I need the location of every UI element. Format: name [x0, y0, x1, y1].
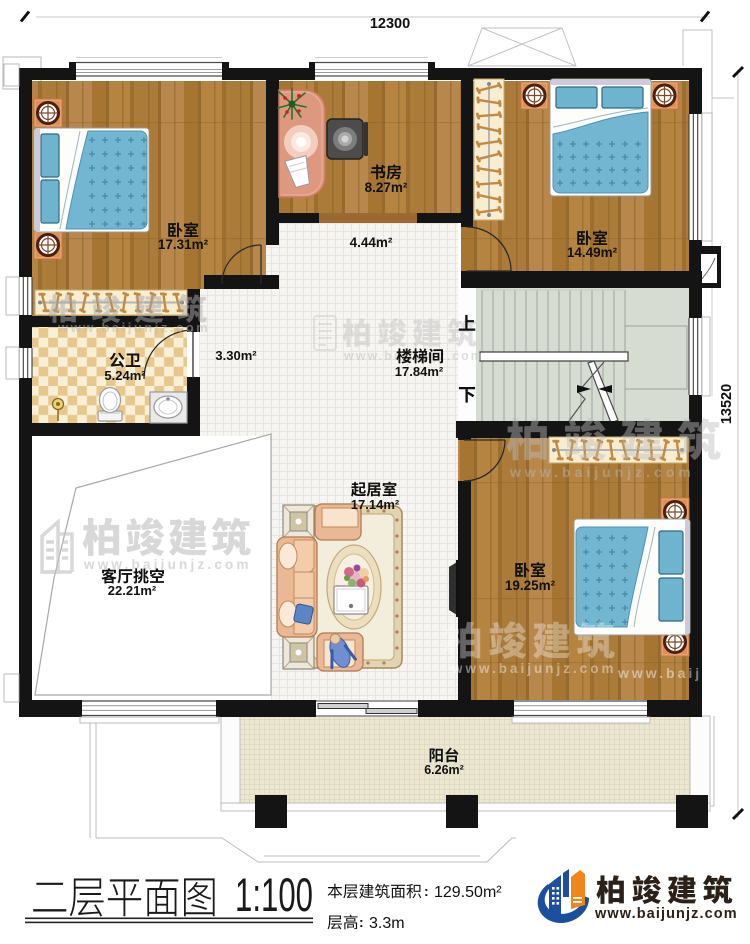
- svg-text:www.baijunjz.com: www.baijunjz.com: [343, 349, 484, 363]
- svg-text::: :: [424, 883, 429, 899]
- svg-text:www.baijunjz.com: www.baijunjz.com: [509, 464, 695, 480]
- svg-text:22.21m²: 22.21m²: [108, 583, 157, 598]
- svg-text:17.31m²: 17.31m²: [158, 237, 209, 252]
- svg-text:4.44m²: 4.44m²: [350, 235, 393, 250]
- svg-text::: :: [359, 914, 364, 930]
- svg-text:8.27m²: 8.27m²: [365, 180, 408, 195]
- svg-text:1:100: 1:100: [235, 868, 313, 921]
- svg-text:14.49m²: 14.49m²: [567, 245, 618, 260]
- svg-text:www.baijunjz.com: www.baijunjz.com: [594, 906, 738, 922]
- svg-text:3.30m²: 3.30m²: [215, 348, 257, 363]
- svg-text:129.50m²: 129.50m²: [434, 884, 502, 901]
- svg-text:17.14m²: 17.14m²: [351, 497, 400, 512]
- svg-text:12300: 12300: [370, 16, 410, 32]
- svg-text:19.25m²: 19.25m²: [505, 578, 556, 593]
- svg-text:www.baijunjz.com: www.baijunjz.com: [451, 661, 617, 676]
- svg-text:5.24m²: 5.24m²: [104, 368, 146, 383]
- svg-text:3.3m: 3.3m: [369, 915, 405, 932]
- svg-text:www.baijunjz.com: www.baijunjz.com: [57, 320, 210, 335]
- svg-text:13520: 13520: [719, 384, 735, 424]
- svg-text:www.baijunjz.com: www.baijunjz.com: [617, 665, 750, 681]
- svg-text:17.84m²: 17.84m²: [395, 364, 444, 379]
- svg-text:6.26m²: 6.26m²: [424, 763, 464, 777]
